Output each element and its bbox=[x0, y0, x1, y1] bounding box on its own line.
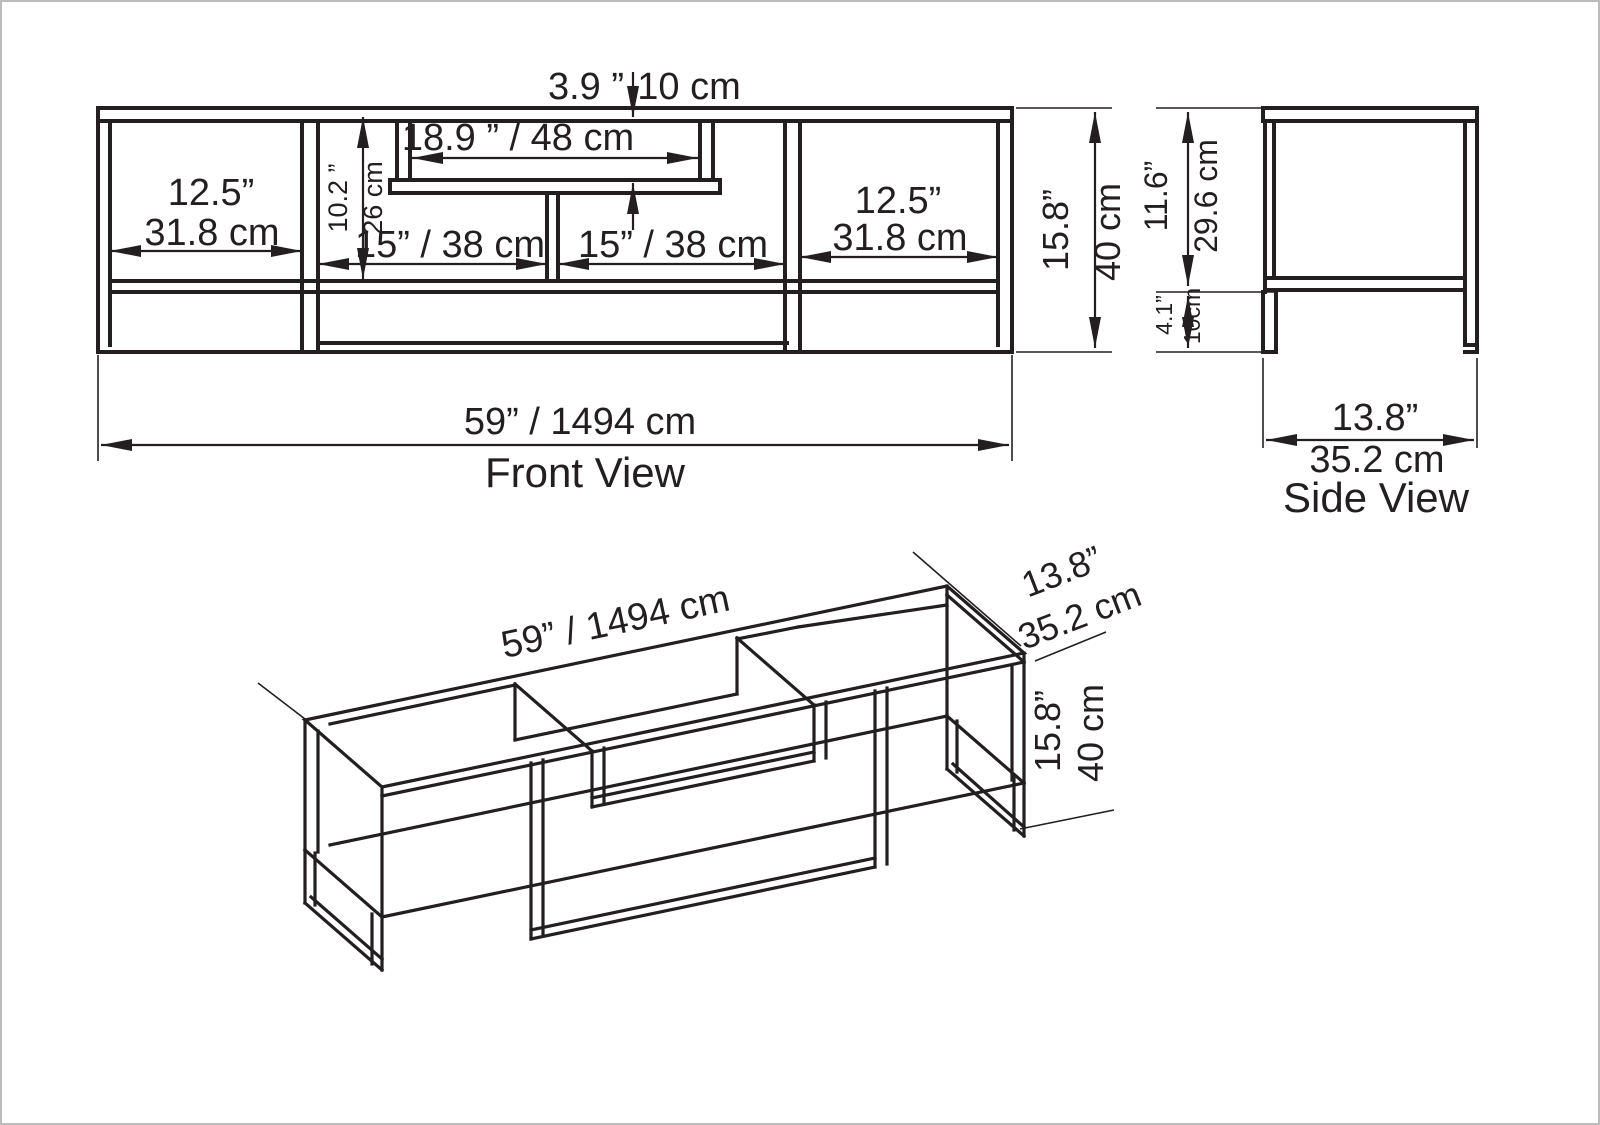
front-overall-width: 59” / 1494 cm bbox=[464, 401, 696, 443]
front-middle-right-section: 15” / 38 cm bbox=[578, 224, 768, 266]
front-recess-depth-inches: 3.9 ” bbox=[548, 66, 624, 108]
side-view-title: Side View bbox=[1283, 474, 1470, 521]
front-right-compartment-inches: 12.5” bbox=[855, 180, 942, 222]
front-left-compartment-inches: 12.5” bbox=[168, 172, 255, 214]
tv-stand-dimension-drawing: 3.9 ” 10 cm 18.9 ” / 48 cm 10.2 ” 26 cm … bbox=[0, 0, 1600, 1125]
front-view-title: Front View bbox=[485, 449, 686, 496]
front-overall-height-inches: 15.8” bbox=[1035, 189, 1076, 271]
technical-drawing-page: 3.9 ” 10 cm 18.9 ” / 48 cm 10.2 ” 26 cm … bbox=[0, 0, 1600, 1125]
front-opening-height-inches: 10.2 ” bbox=[323, 163, 353, 232]
side-body-height-cm: 29.6 cm bbox=[1188, 139, 1224, 253]
front-tv-opening-width: 18.9 ” / 48 cm bbox=[402, 117, 634, 159]
side-body-height-inches: 11.6” bbox=[1138, 161, 1174, 232]
front-recess-depth-cm: 10 cm bbox=[637, 66, 740, 108]
front-right-compartment-cm: 31.8 cm bbox=[832, 217, 967, 259]
front-left-compartment-cm: 31.8 cm bbox=[144, 212, 279, 254]
iso-height-cm: 40 cm bbox=[1070, 684, 1111, 782]
side-leg-height-inches: 4.1” bbox=[1151, 295, 1177, 335]
iso-height-inches: 15.8” bbox=[1027, 690, 1068, 772]
front-middle-left-section: 15” / 38 cm bbox=[355, 224, 545, 266]
side-leg-height-cm: 10cm bbox=[1179, 288, 1205, 344]
side-depth-inches: 13.8” bbox=[1332, 397, 1419, 439]
front-overall-height-cm: 40 cm bbox=[1087, 183, 1128, 281]
